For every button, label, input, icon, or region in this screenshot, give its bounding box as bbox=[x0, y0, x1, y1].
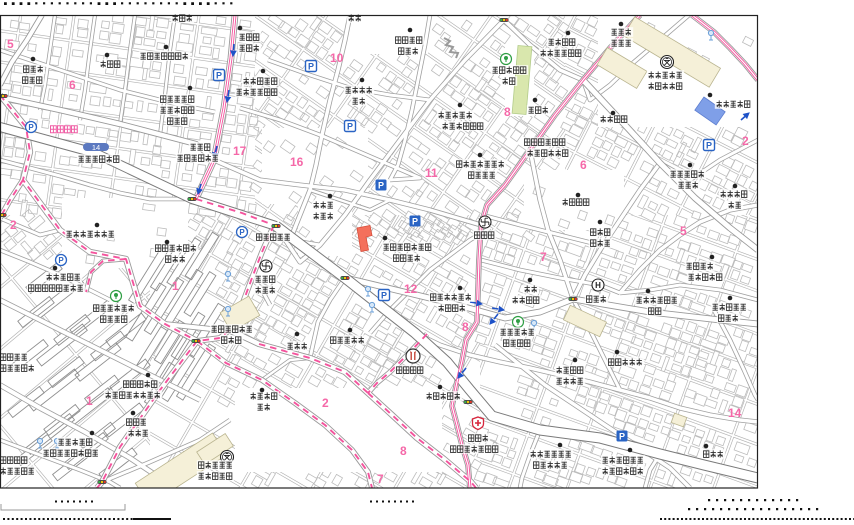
svg-text:12: 12 bbox=[404, 282, 418, 296]
svg-text:2: 2 bbox=[322, 396, 329, 410]
svg-text:P: P bbox=[412, 216, 418, 226]
svg-text:P: P bbox=[58, 256, 64, 265]
svg-text:P: P bbox=[381, 290, 387, 300]
svg-text:6: 6 bbox=[69, 78, 76, 92]
svg-text:P: P bbox=[308, 61, 314, 71]
svg-text:6: 6 bbox=[580, 158, 587, 172]
svg-text:17: 17 bbox=[233, 144, 247, 158]
svg-text:P: P bbox=[216, 70, 222, 80]
svg-text:P: P bbox=[28, 123, 34, 132]
svg-text:11: 11 bbox=[425, 166, 438, 180]
svg-text:H: H bbox=[595, 281, 601, 290]
svg-text:1: 1 bbox=[172, 279, 179, 293]
svg-text:P: P bbox=[378, 180, 384, 190]
svg-text:8: 8 bbox=[462, 320, 469, 334]
svg-text:P: P bbox=[347, 121, 353, 131]
svg-text:5: 5 bbox=[7, 37, 14, 51]
svg-text:P: P bbox=[619, 431, 625, 441]
svg-text:5: 5 bbox=[680, 224, 687, 238]
svg-text:7: 7 bbox=[540, 250, 547, 264]
svg-text:14: 14 bbox=[728, 406, 742, 420]
svg-text:2: 2 bbox=[742, 134, 749, 148]
svg-text:2: 2 bbox=[10, 218, 17, 232]
svg-text:14: 14 bbox=[92, 143, 100, 152]
svg-text:7: 7 bbox=[377, 472, 384, 486]
svg-text:8: 8 bbox=[400, 444, 407, 458]
svg-text:P: P bbox=[706, 140, 712, 150]
svg-text:1: 1 bbox=[86, 394, 93, 408]
svg-text:16: 16 bbox=[290, 155, 304, 169]
svg-text:P: P bbox=[239, 228, 245, 237]
svg-text:10: 10 bbox=[330, 51, 344, 65]
svg-text:8: 8 bbox=[504, 105, 511, 119]
